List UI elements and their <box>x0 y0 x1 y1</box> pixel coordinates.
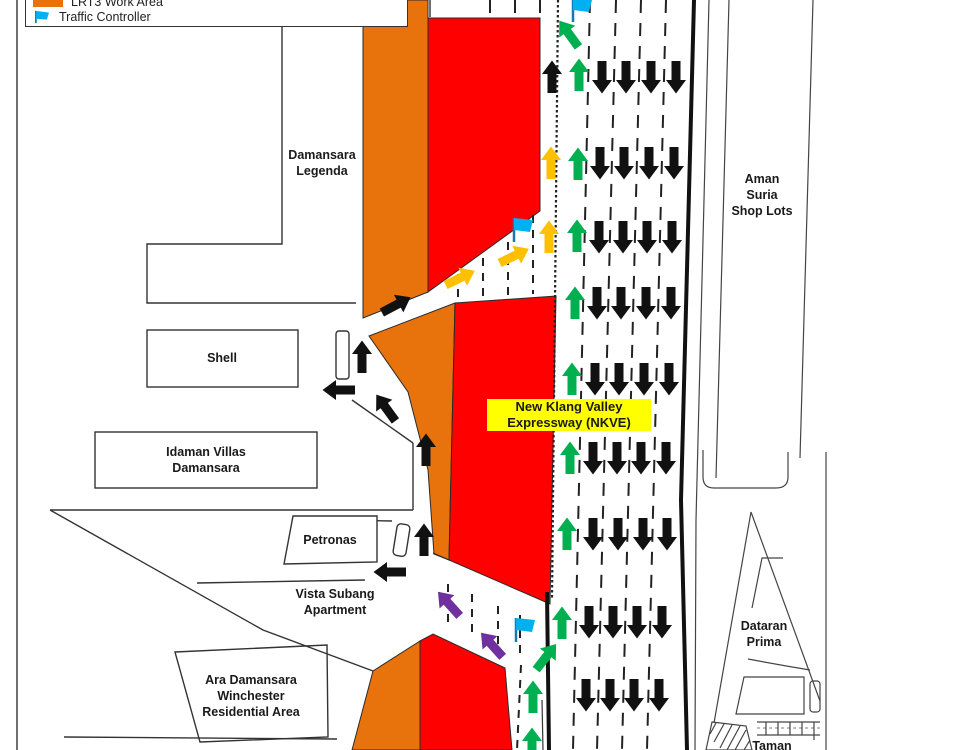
label-line: Shell <box>187 350 257 366</box>
label-line: Petronas <box>285 532 375 548</box>
legend-label: LRT3 Work Area <box>71 0 163 9</box>
traffic-arrow-black-down <box>583 442 603 475</box>
traffic-arrow-black-down <box>609 363 629 396</box>
legend-item-traffic-controller: Traffic Controller <box>33 9 407 24</box>
label-aman-suria-shop-lots: AmanSuriaShop Lots <box>707 171 817 219</box>
traffic-arrow-black-down <box>649 679 669 712</box>
traffic-arrow-black <box>368 389 403 427</box>
traffic-arrow-black-down <box>600 679 620 712</box>
legend: LRT3 Work Area Traffic Controller <box>25 0 408 27</box>
traffic-arrow-black-down <box>587 287 607 320</box>
traffic-arrow-black-down <box>636 287 656 320</box>
traffic-arrow-black-down <box>664 147 684 180</box>
label-line: Ara Damansara <box>171 672 331 688</box>
traffic-arrow-black-down <box>579 606 599 639</box>
traffic-arrow-black-down <box>607 442 627 475</box>
traffic-island-petronas <box>393 523 411 557</box>
label-line: Taman <box>737 738 807 750</box>
traffic-arrow-black-down <box>633 518 653 551</box>
label-line: Legenda <box>262 163 382 179</box>
shop-lots-east-line <box>800 0 813 458</box>
traffic-arrow-green <box>557 518 577 551</box>
traffic-arrow-yellow <box>495 240 533 272</box>
traffic-arrow-black-down <box>613 221 633 254</box>
traffic-arrow-green <box>569 59 589 92</box>
traffic-arrow-black-down <box>611 287 631 320</box>
label-idaman-villas-damansara: Idaman VillasDamansara <box>136 444 276 476</box>
traffic-controller-bottom-flag-icon <box>516 618 535 642</box>
traffic-arrow-black-down <box>585 363 605 396</box>
traffic-arrow-black-down <box>614 147 634 180</box>
label-nkve: New Klang ValleyExpressway (NKVE) <box>487 399 651 431</box>
traffic-arrow-yellow <box>541 147 561 180</box>
traffic-arrow-black-down <box>631 442 651 475</box>
frontage-road-line-1 <box>695 0 709 750</box>
label-line: Apartment <box>270 602 400 618</box>
label-line: Damansara <box>262 147 382 163</box>
traffic-arrow-green <box>522 728 542 750</box>
dataran-prima-inner-block <box>736 677 804 714</box>
traffic-arrow-green <box>552 607 572 640</box>
traffic-arrow-black-down <box>624 679 644 712</box>
traffic-controller-flag-icon <box>33 10 51 24</box>
traffic-controller-top-flag-icon <box>573 0 592 22</box>
label-line: Idaman Villas <box>136 444 276 460</box>
traffic-arrow-green <box>565 287 585 320</box>
work-area-lower <box>352 641 420 750</box>
label-petronas: Petronas <box>285 532 375 548</box>
label-line: Dataran <box>719 618 809 634</box>
label-line: Vista Subang <box>270 586 400 602</box>
label-line: Damansara <box>136 460 276 476</box>
traffic-arrow-black-down <box>608 518 628 551</box>
traffic-arrow-black-down <box>592 61 612 94</box>
traffic-arrow-black-down <box>656 442 676 475</box>
traffic-arrow-black-down <box>590 147 610 180</box>
traffic-management-plan: LRT3 Work Area Traffic Controller Damans… <box>0 0 960 750</box>
traffic-arrow-black-down <box>659 363 679 396</box>
traffic-arrow-black-down <box>641 61 661 94</box>
map-canvas <box>0 0 960 750</box>
label-line: Suria <box>707 187 817 203</box>
highway-right-edge <box>681 0 694 750</box>
frontage-road-line-2 <box>716 0 729 478</box>
label-damansara-legenda: DamansaraLegenda <box>262 147 382 179</box>
label-shell: Shell <box>187 350 257 366</box>
label-taman: Taman <box>737 738 807 750</box>
traffic-arrow-black <box>542 61 562 94</box>
traffic-arrow-black-down <box>639 147 659 180</box>
traffic-controller-middle-flag-icon <box>514 218 533 242</box>
traffic-arrow-green <box>523 681 543 714</box>
label-line: Residential Area <box>171 704 331 720</box>
traffic-arrow-black-down <box>603 606 623 639</box>
traffic-arrow-black <box>323 380 356 400</box>
label-line: Shop Lots <box>707 203 817 219</box>
traffic-arrow-black <box>414 524 434 557</box>
traffic-arrow-green <box>568 148 588 181</box>
traffic-arrow-black-down <box>666 61 686 94</box>
label-line: Expressway (NKVE) <box>487 415 651 431</box>
legend-label: Traffic Controller <box>59 10 151 24</box>
traffic-arrow-black <box>352 341 372 374</box>
traffic-arrow-black-down <box>583 518 603 551</box>
label-line: Prima <box>719 634 809 650</box>
traffic-arrow-black-down <box>661 287 681 320</box>
traffic-arrow-black-down <box>662 221 682 254</box>
traffic-arrow-black-down <box>634 363 654 396</box>
work-area-swatch <box>33 0 63 7</box>
label-ara-damansara-winchester: Ara DamansaraWinchesterResidential Area <box>171 672 331 720</box>
label-line: New Klang Valley <box>487 399 651 415</box>
traffic-arrow-black-down <box>576 679 596 712</box>
traffic-arrow-green <box>560 442 580 475</box>
legend-item-work-area: LRT3 Work Area <box>33 0 407 9</box>
traffic-arrow-black-down <box>627 606 647 639</box>
traffic-arrow-black-down <box>637 221 657 254</box>
label-line: Winchester <box>171 688 331 704</box>
traffic-arrow-green <box>562 363 582 396</box>
traffic-island-shell <box>336 331 349 379</box>
highway-left-edge <box>547 592 549 750</box>
traffic-arrow-black-down <box>652 606 672 639</box>
traffic-arrow-black <box>374 562 407 582</box>
traffic-arrow-black-down <box>657 518 677 551</box>
closed-lane-top-dashes <box>490 0 540 13</box>
label-dataran-prima: DataranPrima <box>719 618 809 650</box>
traffic-arrow-black-down <box>589 221 609 254</box>
label-line: Aman <box>707 171 817 187</box>
traffic-arrow-black-down <box>616 61 636 94</box>
label-vista-subang-apartment: Vista SubangApartment <box>270 586 400 618</box>
